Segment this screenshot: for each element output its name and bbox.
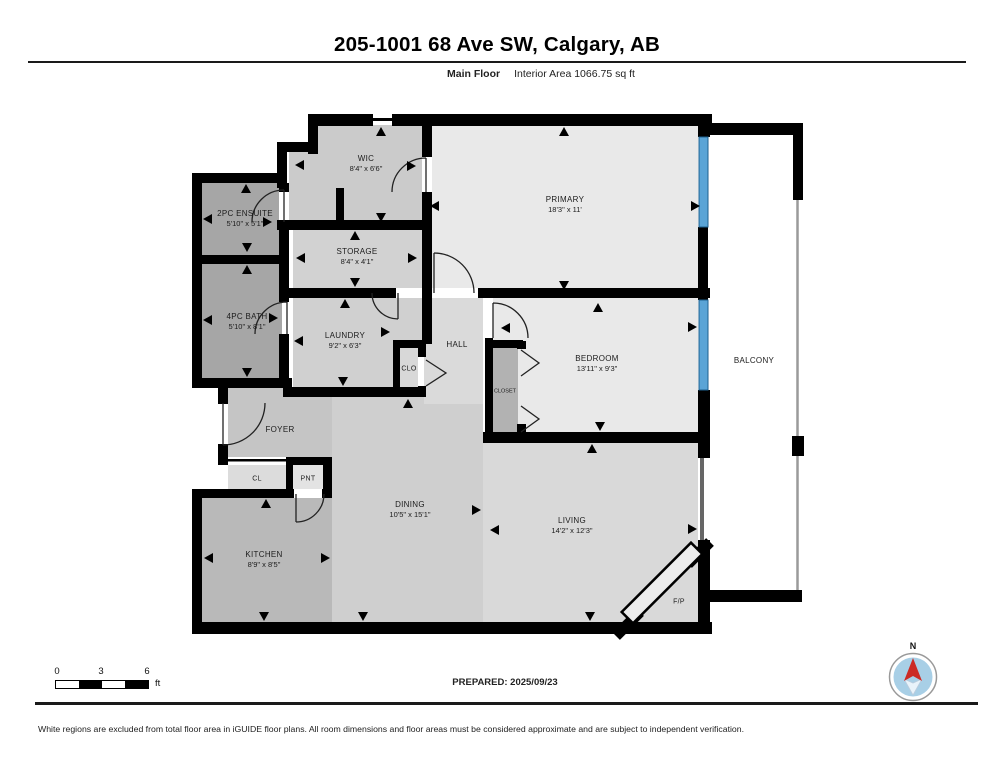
room-label-cl: CL	[252, 474, 262, 483]
scale-tick-6: 6	[144, 666, 149, 677]
footer-divider-line	[35, 702, 978, 705]
bedroom-window	[699, 300, 708, 390]
scale-unit: ft	[155, 678, 160, 689]
floorplan-canvas	[0, 0, 994, 768]
scale-tick-0: 0	[54, 666, 59, 677]
disclaimer-text: White regions are excluded from total fl…	[38, 724, 974, 734]
primary-window	[699, 137, 708, 227]
room-label-fireplace: F/P	[673, 597, 685, 606]
room-label-living: LIVING14'2" x 12'3"	[551, 516, 592, 536]
windows-layer	[699, 137, 708, 540]
room-label-hall: HALL	[446, 340, 467, 350]
prepared-date: PREPARED: 2025/09/23	[420, 677, 590, 688]
room-label-foyer: FOYER	[265, 425, 294, 435]
room-label-kitchen: KITCHEN8'9" x 8'5"	[245, 550, 282, 570]
scale-tick-3: 3	[98, 666, 103, 677]
room-label-bedroom: BEDROOM13'11" x 9'3"	[575, 354, 618, 374]
room-label-laundry: LAUNDRY9'2" x 6'3"	[325, 331, 365, 351]
room-label-pnt: PNT	[301, 474, 316, 483]
compass-icon	[890, 654, 937, 701]
room-label-ensuite: 2PC ENSUITE5'10" x 5'1"	[217, 209, 273, 229]
room-label-dining: DINING10'5" x 15'1"	[389, 500, 430, 520]
compass-north-label: N	[905, 641, 921, 651]
room-label-closet: CLOSET	[494, 388, 516, 395]
patio-door	[700, 458, 704, 540]
room-foyer-area	[228, 388, 332, 457]
room-label-bath: 4PC BATH5'10" x 8'1"	[227, 312, 268, 332]
scale-bar-segments	[55, 680, 149, 689]
room-label-clo: CLO	[401, 364, 416, 373]
room-label-primary: PRIMARY18'3" x 11'	[546, 195, 584, 215]
room-hall-area	[424, 298, 483, 404]
floorplan-page: { "header": { "title": "205-1001 68 Ave …	[0, 0, 994, 768]
room-label-balcony: BALCONY	[734, 356, 774, 366]
room-label-wic: WIC8'4" x 6'6"	[350, 154, 383, 174]
room-label-storage: STORAGE8'4" x 4'1"	[336, 247, 377, 267]
scale-bar: 0 3 6 ft	[55, 666, 175, 692]
